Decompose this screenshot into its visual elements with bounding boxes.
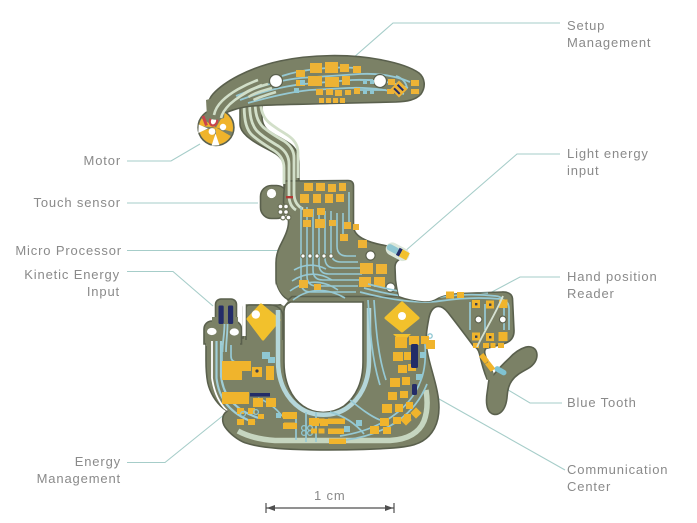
svg-text:Motor: Motor bbox=[84, 153, 121, 168]
svg-text:Management: Management bbox=[567, 35, 651, 50]
svg-text:Touch sensor: Touch sensor bbox=[33, 195, 121, 210]
svg-text:Communication: Communication bbox=[567, 462, 668, 477]
svg-text:Reader: Reader bbox=[567, 286, 615, 301]
svg-text:Micro Processor: Micro Processor bbox=[15, 243, 122, 258]
svg-text:Management: Management bbox=[37, 471, 121, 486]
svg-text:Hand position: Hand position bbox=[567, 269, 658, 284]
svg-text:Center: Center bbox=[567, 479, 611, 494]
svg-text:1 cm: 1 cm bbox=[314, 488, 346, 503]
svg-text:input: input bbox=[567, 163, 599, 178]
svg-text:Setup: Setup bbox=[567, 18, 605, 33]
svg-text:Light energy: Light energy bbox=[567, 146, 649, 161]
svg-text:Input: Input bbox=[87, 284, 120, 299]
svg-text:Blue Tooth: Blue Tooth bbox=[567, 395, 637, 410]
svg-text:Energy: Energy bbox=[75, 454, 121, 469]
svg-text:Kinetic Energy: Kinetic Energy bbox=[24, 267, 120, 282]
